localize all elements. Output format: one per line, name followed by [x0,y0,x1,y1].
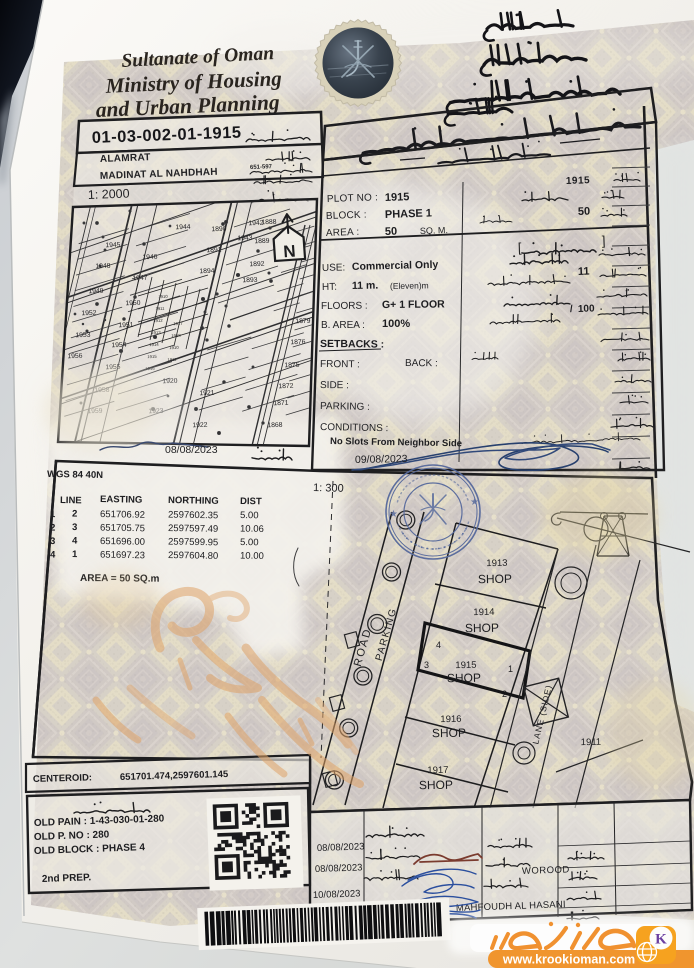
svg-text:1956: 1956 [67,353,83,361]
svg-text:1947: 1947 [132,275,148,283]
svg-text:1953: 1953 [75,332,91,340]
svg-text:1917: 1917 [173,321,183,326]
svg-text:5.00: 5.00 [240,537,259,548]
svg-text:100%: 100% [382,318,410,330]
svg-text:2nd PREP.: 2nd PREP. [42,872,92,885]
svg-text:USE:: USE: [322,262,346,274]
svg-text:1954: 1954 [111,342,127,350]
svg-text:G+ 1 FLOOR: G+ 1 FLOOR [382,298,445,311]
svg-text:50: 50 [385,226,398,238]
svg-text:SHOP: SHOP [447,671,481,686]
svg-text:1894: 1894 [199,268,215,276]
svg-text:1915: 1915 [455,660,476,671]
svg-text:N: N [283,242,297,262]
svg-text:1889: 1889 [254,238,270,246]
svg-text:2597602.35: 2597602.35 [168,510,218,522]
svg-text:1892: 1892 [249,261,265,269]
svg-text:CENTEROID:: CENTEROID: [33,772,92,785]
svg-text:1948: 1948 [95,263,111,271]
svg-text:3: 3 [72,522,77,533]
svg-text:SIDE :: SIDE : [320,380,349,391]
svg-text:1911: 1911 [155,306,165,311]
svg-text:PARKING :: PARKING : [320,401,370,413]
svg-text:2597597.49: 2597597.49 [168,523,218,535]
svg-text:SETBACKS :: SETBACKS : [320,338,384,351]
svg-text:1875: 1875 [284,362,300,370]
svg-text:08/08/2023: 08/08/2023 [165,444,218,456]
svg-text:1: 300: 1: 300 [313,482,344,495]
svg-text:1912: 1912 [153,318,163,323]
svg-text:B. AREA :: B. AREA : [321,320,365,331]
svg-text:DIST: DIST [240,496,262,507]
svg-text:1872: 1872 [278,383,294,391]
svg-text:1950: 1950 [125,300,141,308]
svg-text:100: 100 [578,303,595,315]
svg-text:1: 1 [72,549,78,560]
svg-text:651-597: 651-597 [250,164,273,171]
svg-text:1876: 1876 [290,339,306,347]
svg-text:SQ. M.: SQ. M. [420,225,448,236]
svg-text:1944: 1944 [175,224,191,232]
svg-text:1890: 1890 [211,226,227,234]
svg-text:11 m.: 11 m. [352,280,379,292]
svg-text:2: 2 [72,509,77,520]
svg-text:11: 11 [578,266,590,278]
svg-text:2597604.80: 2597604.80 [168,550,218,562]
svg-text:K: K [655,932,667,948]
svg-text:WOROOD: WOROOD [522,864,570,877]
svg-text:1949: 1949 [88,288,104,296]
svg-text:1945: 1945 [105,242,121,250]
svg-text:1913: 1913 [151,330,161,335]
svg-text:2: 2 [502,689,507,699]
svg-text:1917: 1917 [427,765,448,776]
svg-text:1915: 1915 [385,191,410,204]
svg-text:1916: 1916 [440,714,461,725]
svg-text:SHOP: SHOP [478,572,512,587]
svg-text:10.06: 10.06 [240,524,264,535]
svg-text:3: 3 [50,536,55,547]
svg-text:4: 4 [436,640,441,650]
svg-text:Commercial Only: Commercial Only [352,259,439,273]
svg-text:1951: 1951 [118,322,134,330]
svg-text:1871: 1871 [273,400,289,408]
svg-text:1879: 1879 [295,318,311,326]
svg-text:1910: 1910 [169,345,179,350]
svg-text:★: ★ [389,509,398,520]
svg-text:5.00: 5.00 [240,510,259,521]
svg-text:10/08/2023: 10/08/2023 [313,888,361,901]
svg-text:1888: 1888 [261,219,277,227]
svg-text:2: 2 [50,523,55,534]
svg-text:08/08/2023: 08/08/2023 [317,841,365,854]
svg-text:]: ] [602,233,606,248]
svg-text:651706.92: 651706.92 [100,509,145,521]
svg-text:(Eleven)m: (Eleven)m [390,280,429,291]
svg-text:651697.23: 651697.23 [100,550,145,562]
svg-text:1868: 1868 [267,422,283,430]
svg-text:1: 1 [50,509,56,520]
svg-text:2597599.95: 2597599.95 [168,537,218,549]
svg-text:1910: 1910 [158,294,168,299]
svg-text:WGS 84 40N: WGS 84 40N [47,469,103,481]
svg-text:1891: 1891 [206,247,222,255]
svg-text:BACK :: BACK : [405,358,438,369]
svg-text:651705.75: 651705.75 [100,523,145,535]
svg-text:SHOP: SHOP [432,726,466,741]
svg-text:651696.00: 651696.00 [100,536,145,548]
svg-text:4: 4 [50,550,56,561]
svg-text:3: 3 [424,660,429,670]
svg-text:1946: 1946 [142,254,158,262]
svg-text:SHOP: SHOP [465,621,499,636]
svg-text:EASTING: EASTING [100,494,142,506]
svg-text:50: 50 [578,206,591,218]
svg-text:1914: 1914 [473,607,494,618]
svg-text:HT:: HT: [322,282,337,293]
svg-text:1893: 1893 [242,277,258,285]
svg-text:CONDITIONS :: CONDITIONS : [320,422,389,434]
svg-text:1918: 1918 [171,333,181,338]
svg-text:FRONT :: FRONT : [320,359,360,370]
svg-text:ALAMRAT: ALAMRAT [100,152,151,165]
svg-text:NORTHING: NORTHING [168,495,219,507]
svg-text:1922: 1922 [192,422,208,430]
svg-text:1: 1 [508,664,513,674]
svg-text:SHOP: SHOP [419,778,453,793]
svg-text:LINE: LINE [60,495,82,506]
svg-text:1: 2000: 1: 2000 [88,187,130,202]
svg-text:1914: 1914 [149,342,159,347]
svg-text:1915: 1915 [566,175,591,187]
svg-text:PHASE 1: PHASE 1 [385,207,432,221]
svg-text:AREA :: AREA : [326,227,360,239]
svg-text:1911: 1911 [167,357,177,362]
svg-text:1921: 1921 [199,390,215,398]
svg-text:1913: 1913 [486,558,507,569]
svg-text:www.krookioman.com: www.krookioman.com [502,953,635,967]
svg-text:08/08/2023: 08/08/2023 [315,862,363,875]
svg-text:★: ★ [470,497,479,508]
svg-text:1943: 1943 [237,235,253,243]
svg-text:BLOCK :: BLOCK : [326,210,367,222]
svg-text:10.00: 10.00 [240,551,264,562]
svg-text:4: 4 [72,536,78,547]
svg-text:No Slots From Neighbor Side: No Slots From Neighbor Side [330,436,462,449]
svg-text:FLOORS :: FLOORS : [321,301,368,312]
svg-text:PLOT NO :: PLOT NO : [327,192,378,205]
svg-text:1915: 1915 [147,354,157,359]
svg-text:1952: 1952 [81,310,97,318]
